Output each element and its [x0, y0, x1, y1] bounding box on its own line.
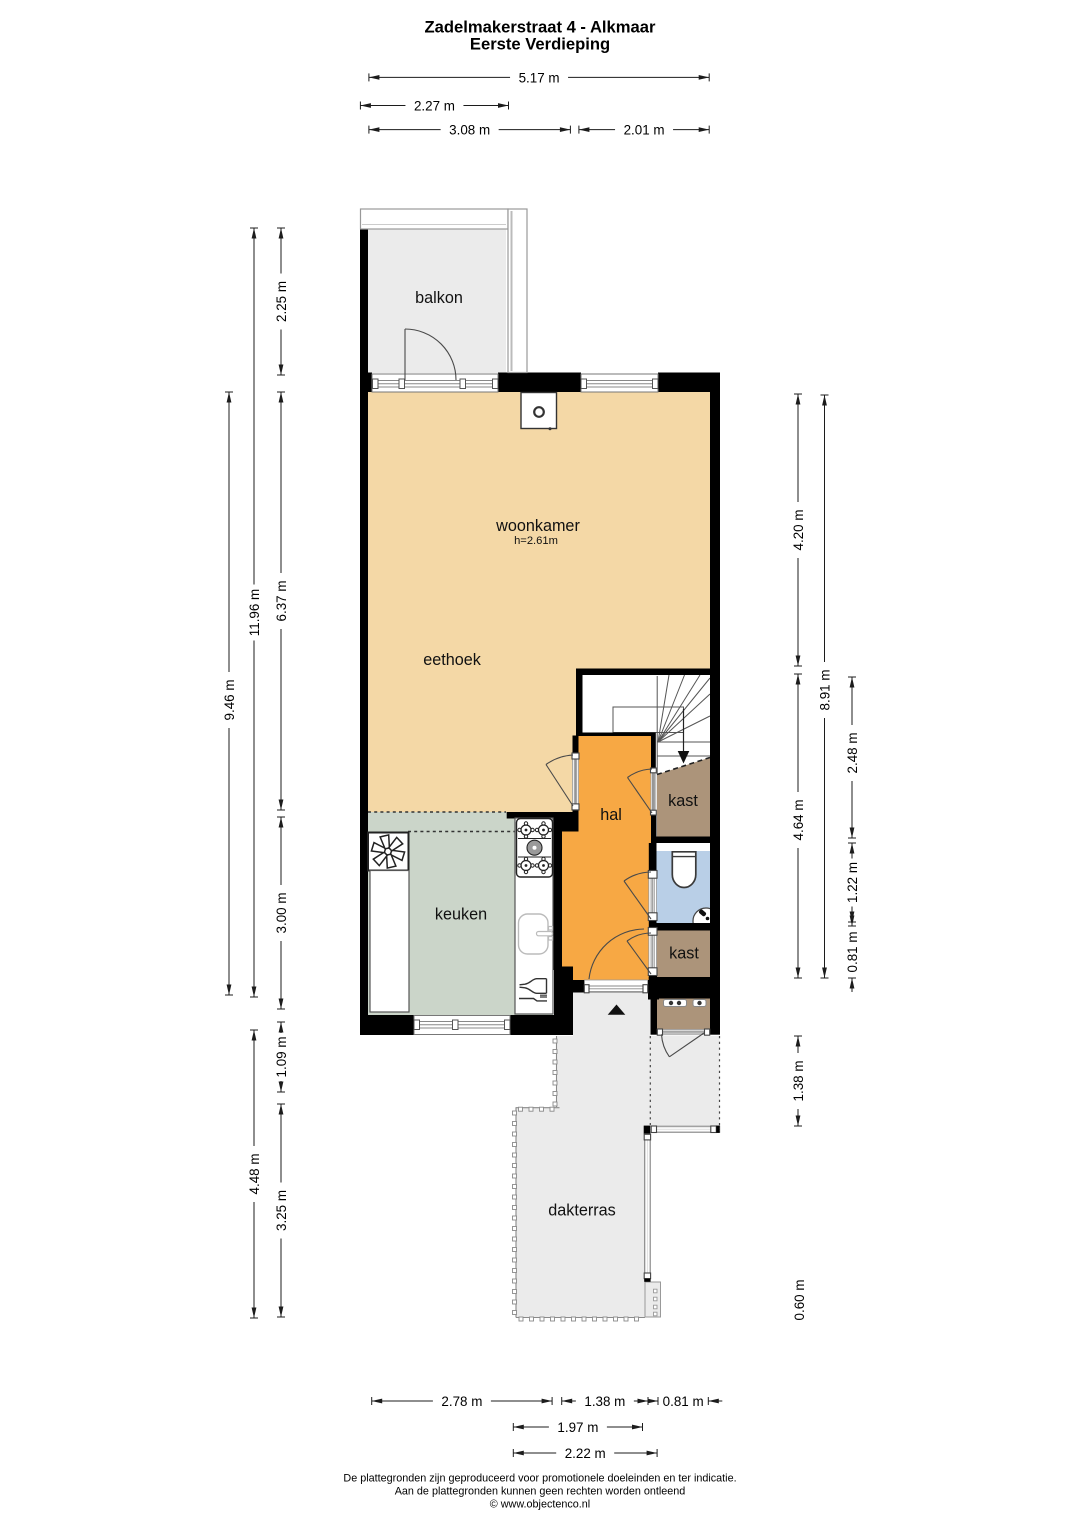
svg-text:De plattegronden zijn geproduc: De plattegronden zijn geproduceerd voor … — [343, 1473, 736, 1485]
svg-text:2.01 m: 2.01 m — [624, 123, 665, 138]
svg-text:keuken: keuken — [435, 906, 487, 924]
svg-text:1.38 m: 1.38 m — [584, 1394, 625, 1409]
svg-text:2.25 m: 2.25 m — [274, 281, 289, 322]
svg-text:1.38 m: 1.38 m — [791, 1061, 806, 1102]
svg-text:3.00 m: 3.00 m — [274, 893, 289, 934]
svg-text:2.27 m: 2.27 m — [414, 99, 455, 114]
svg-text:© www.objectenco.nl: © www.objectenco.nl — [490, 1499, 590, 1511]
svg-text:5.17 m: 5.17 m — [519, 70, 560, 85]
svg-text:2.48 m: 2.48 m — [845, 733, 860, 774]
svg-text:1.22 m: 1.22 m — [845, 862, 860, 903]
svg-text:eethoek: eethoek — [423, 651, 482, 669]
svg-text:dakterras: dakterras — [548, 1202, 615, 1220]
svg-text:Eerste Verdieping: Eerste Verdieping — [470, 35, 610, 54]
svg-text:11.96 m: 11.96 m — [247, 589, 262, 636]
svg-text:9.46 m: 9.46 m — [222, 680, 237, 721]
svg-text:kast: kast — [668, 792, 698, 810]
svg-text:3.25 m: 3.25 m — [274, 1190, 289, 1231]
svg-text:0.81 m: 0.81 m — [845, 932, 860, 973]
svg-text:h=2.61m: h=2.61m — [514, 535, 558, 547]
svg-text:4.20 m: 4.20 m — [791, 510, 806, 551]
svg-text:4.48 m: 4.48 m — [247, 1154, 262, 1195]
svg-text:0.81 m: 0.81 m — [663, 1394, 704, 1409]
svg-text:4.64 m: 4.64 m — [791, 800, 806, 841]
svg-text:balkon: balkon — [415, 289, 463, 307]
svg-text:hal: hal — [600, 806, 622, 824]
svg-text:Aan de plattegronden kunnen ge: Aan de plattegronden kunnen geen rechten… — [395, 1486, 686, 1498]
svg-text:2.78 m: 2.78 m — [441, 1394, 482, 1409]
svg-text:6.37 m: 6.37 m — [274, 581, 289, 622]
svg-text:1.97 m: 1.97 m — [557, 1420, 598, 1435]
svg-text:woonkamer: woonkamer — [495, 517, 580, 535]
svg-text:1.09 m: 1.09 m — [274, 1037, 289, 1078]
svg-text:3.08 m: 3.08 m — [449, 123, 490, 138]
svg-text:kast: kast — [669, 945, 699, 963]
svg-text:0.60 m: 0.60 m — [792, 1280, 807, 1321]
svg-text:2.22 m: 2.22 m — [565, 1446, 606, 1461]
svg-text:8.91 m: 8.91 m — [818, 670, 833, 711]
